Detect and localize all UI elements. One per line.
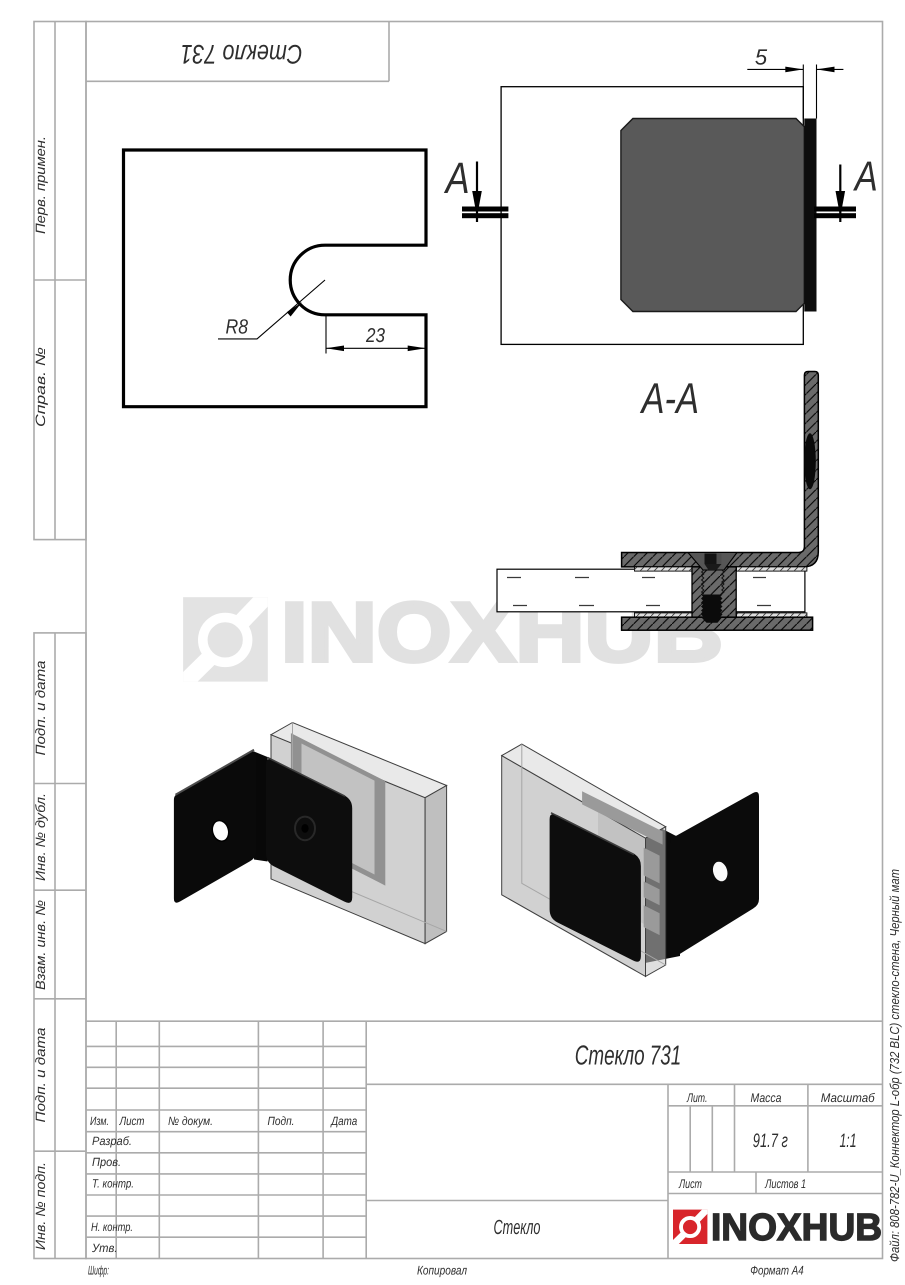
svg-text:Лист: Лист — [678, 1177, 702, 1191]
svg-text:Пров.: Пров. — [92, 1155, 121, 1169]
svg-text:Масштаб: Масштаб — [821, 1091, 876, 1105]
svg-text:Копировал: Копировал — [417, 1264, 467, 1278]
svg-text:A: A — [852, 153, 877, 200]
svg-text:Лист: Лист — [119, 1114, 145, 1128]
svg-text:Файл: 808-782-U_Коннектор L-об: Файл: 808-782-U_Коннектор L-обр (732 BLC… — [887, 869, 902, 1262]
svg-text:Стекло 731: Стекло 731 — [575, 1039, 682, 1070]
svg-text:Стекло 731: Стекло 731 — [181, 39, 303, 69]
svg-text:A-A: A-A — [639, 375, 699, 423]
svg-text:Масса: Масса — [751, 1091, 782, 1105]
svg-text:R8: R8 — [226, 316, 249, 339]
svg-text:Перв. примен.: Перв. примен. — [33, 136, 48, 234]
svg-text:Дата: Дата — [330, 1114, 358, 1128]
svg-text:1:1: 1:1 — [840, 1130, 857, 1152]
svg-text:Справ. №: Справ. № — [33, 347, 48, 427]
svg-text:Формат А4: Формат А4 — [750, 1264, 804, 1278]
svg-text:Шифр:: Шифр: — [88, 1264, 109, 1278]
svg-text:5: 5 — [755, 45, 768, 70]
svg-text:Лит.: Лит. — [686, 1091, 707, 1105]
svg-text:91.7 г: 91.7 г — [753, 1130, 788, 1152]
svg-text:Взам. инв. №: Взам. инв. № — [33, 900, 48, 990]
svg-text:Подп. и дата: Подп. и дата — [33, 1027, 48, 1123]
svg-text:Изм.: Изм. — [90, 1114, 109, 1128]
svg-text:Разраб.: Разраб. — [92, 1134, 132, 1148]
svg-text:Стекло: Стекло — [494, 1216, 541, 1239]
svg-text:Н. контр.: Н. контр. — [91, 1220, 133, 1234]
svg-text:Т. контр.: Т. контр. — [92, 1177, 134, 1191]
svg-text:Инв. № подп.: Инв. № подп. — [33, 1162, 48, 1250]
svg-text:Подп.: Подп. — [268, 1114, 295, 1128]
svg-text:Подп. и дата: Подп. и дата — [33, 660, 48, 756]
svg-text:Листов 1: Листов 1 — [764, 1177, 806, 1191]
svg-text:23: 23 — [365, 325, 385, 347]
svg-text:Инв. № дубл.: Инв. № дубл. — [33, 793, 48, 881]
svg-text:A: A — [443, 154, 469, 203]
svg-text:Утв.: Утв. — [91, 1241, 117, 1255]
svg-text:INOXHUB: INOXHUB — [711, 1207, 882, 1249]
svg-text:№ докум.: № докум. — [168, 1114, 213, 1128]
